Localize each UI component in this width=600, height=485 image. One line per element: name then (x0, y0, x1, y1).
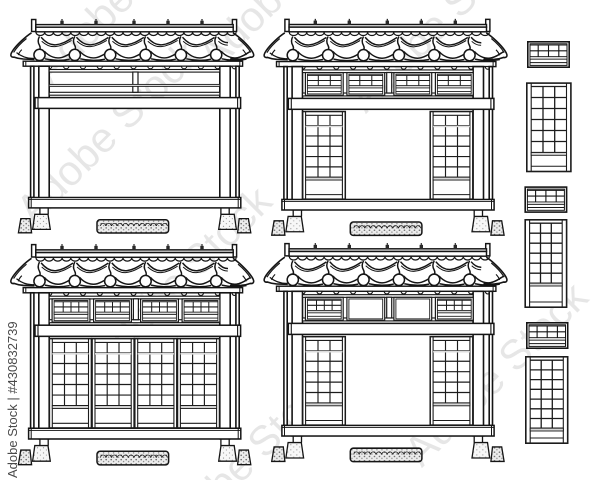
svg-text:Adobe Stock | #430832739: Adobe Stock | #430832739 (5, 321, 20, 478)
